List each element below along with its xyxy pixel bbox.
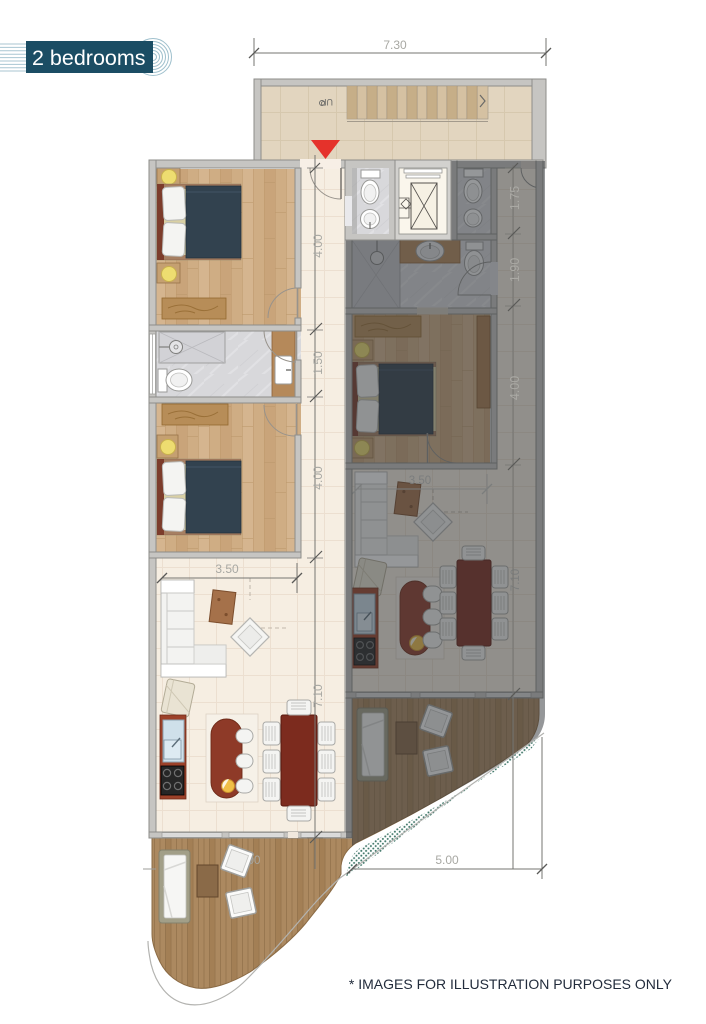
- svg-text:1.50: 1.50: [311, 351, 325, 375]
- svg-text:4.00: 4.00: [311, 466, 325, 490]
- svg-text:1.75: 1.75: [508, 186, 522, 210]
- svg-text:1.90: 1.90: [508, 258, 522, 282]
- svg-text:4.00: 4.00: [508, 376, 522, 400]
- svg-text:4.00: 4.00: [311, 234, 325, 258]
- svg-text:7.30: 7.30: [383, 38, 407, 52]
- svg-text:* IMAGES FOR ILLUSTRATION PUR: * IMAGES FOR ILLUSTRATION PURPOSES ONLY: [349, 976, 673, 992]
- svg-text:5.00: 5.00: [435, 853, 459, 867]
- svg-text:7.10: 7.10: [311, 684, 325, 708]
- svg-text:2 bedrooms: 2 bedrooms: [32, 46, 146, 70]
- svg-text:3.50: 3.50: [215, 562, 239, 576]
